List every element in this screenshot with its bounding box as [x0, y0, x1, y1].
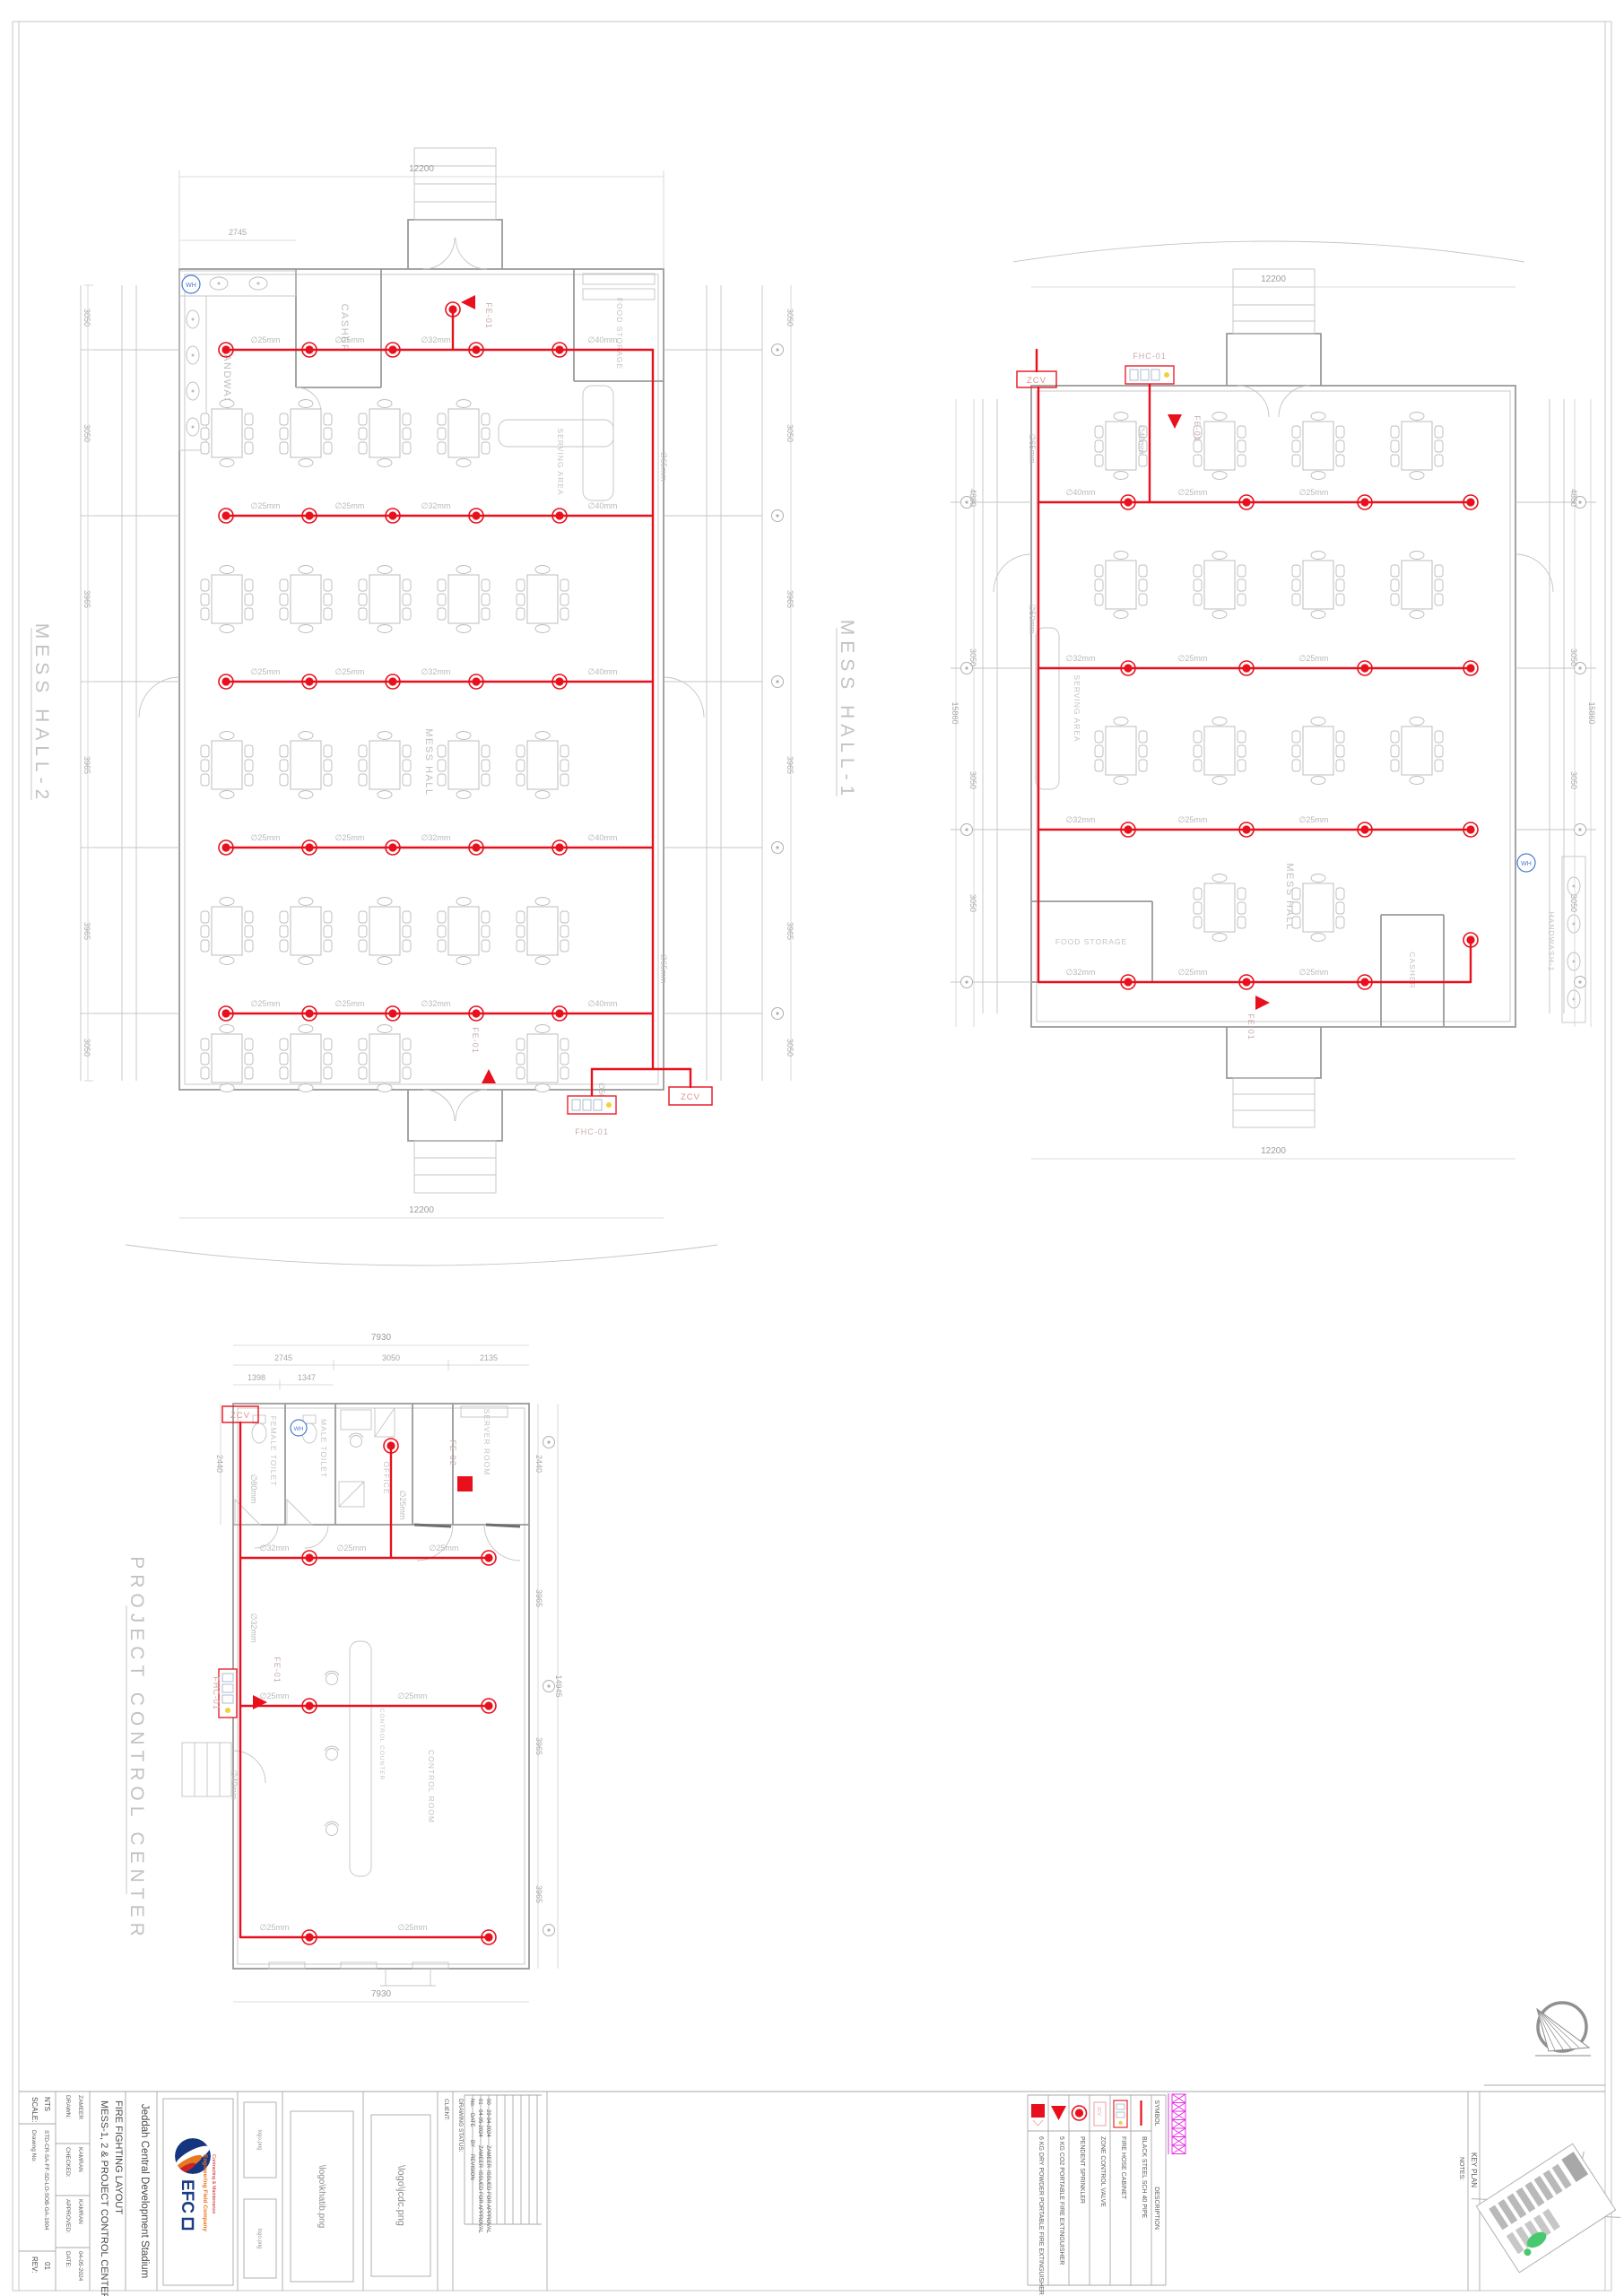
pipe-size-label: ∅40mm [588, 999, 618, 1008]
fe-label: FE-01 [484, 302, 493, 329]
room-label-mess-hall: MESS HALL [423, 728, 434, 796]
fe-label: FE-01 [1246, 1013, 1255, 1040]
dim-mh2-right: 3050 [786, 309, 795, 326]
dining-table [438, 732, 490, 799]
pipe-size-label: ∅32mm [1066, 815, 1096, 824]
pipe-size-label: ∅25mm [337, 1544, 367, 1552]
dim-mh1-left-total: 15860 [951, 701, 960, 724]
handwash-basin [1568, 990, 1580, 1008]
plan-title-pcc: PROJECT CONTROL CENTER [126, 1556, 147, 1942]
room-label-serving-area: SERVING AREA [1073, 674, 1081, 742]
handwash-basin [187, 382, 199, 400]
pipe-size-label: ∅25mm [251, 501, 281, 510]
plan-mess-hall-1: MESS HALL-1 CASHER [837, 241, 1596, 1159]
sheet-border [13, 22, 1611, 2291]
pipe-size-label: ∅25mm [1299, 968, 1329, 977]
dining-table [280, 898, 332, 965]
rev-header-date: DATE [469, 2113, 474, 2127]
dim-pcc-right: 3965 [534, 1589, 543, 1607]
pipe-size-label: ∅25mm [1299, 488, 1329, 497]
legend-desc-fhc: FIRE HOSE CABINET [1120, 2136, 1126, 2200]
dining-table [359, 1025, 411, 1092]
dim-mh2-handwash: 2745 [229, 228, 247, 237]
pipe-size-label: ∅25mm [260, 1923, 290, 1932]
pipe-size-label: ∅25mm [398, 1923, 428, 1932]
room-label-control-counter: CONTROL COUNTER [378, 1709, 385, 1780]
pipe-size-label: ∅40mm [1066, 488, 1096, 497]
rev-row-cell: 00 [485, 2099, 491, 2105]
plan-title-mess-hall-1: MESS HALL-1 [837, 620, 857, 802]
drawing-sheet: MESS HALL-2 [0, 0, 1624, 2296]
mh2-grid-bubbles [772, 344, 784, 1020]
room-label-food-storage: FOOD STORAGE [1055, 937, 1127, 946]
dining-table [280, 732, 332, 799]
dining-table [359, 566, 411, 633]
dim-pcc-right: 3965 [534, 1885, 543, 1903]
legend-symbol-co2-extinguisher [1051, 2106, 1066, 2120]
key-plan-section: NOTES: KEY PLAN [1458, 2003, 1624, 2291]
legend-desc-zcv: ZONE CONTROL VALVE [1099, 2136, 1106, 2207]
dim-mh2-left: 3050 [83, 309, 91, 326]
fhc-label: FHC-01 [1133, 352, 1167, 361]
logo-placeholder-1: logo.png [256, 2129, 262, 2150]
dining-table [438, 400, 490, 467]
key-plan-map [1472, 2134, 1624, 2281]
scale-label: SCALE: [30, 2097, 39, 2122]
dining-table [280, 1025, 332, 1092]
fire-extinguisher-co2-symbol [461, 295, 475, 309]
room-label-server-room: SERVER ROOM [482, 1409, 491, 1476]
zcv-label: ZCV [1027, 376, 1046, 386]
dim-pcc: 3050 [382, 1353, 400, 1362]
legend-title-strip [1168, 2093, 1185, 2154]
dim-mh1-right: 3050 [1569, 894, 1578, 912]
dining-table [201, 898, 253, 965]
date-label: DATE: [65, 2251, 71, 2268]
dim-mh2-right: 3965 [786, 756, 795, 774]
room-label-office: OFFICE [382, 1461, 391, 1494]
pipe-size-label: ∅25mm [251, 999, 281, 1008]
legend-symbol-fire-hose-cabinet [1114, 2100, 1127, 2127]
fe-label: FE-01 [273, 1657, 282, 1683]
pipe-size-label: ∅25mm [1178, 815, 1208, 824]
drawing-title-line2: FIRE FIGHTING LAYOUT [113, 2100, 124, 2214]
logo-placeholder-2: logo.png [256, 2228, 262, 2248]
drawing-no-label: Drawing No: [30, 2130, 37, 2162]
mh1-dining-tables [1095, 413, 1443, 942]
handwash-basin [187, 346, 199, 364]
drawn-value: ZAMEER [77, 2095, 83, 2119]
pipe-size-label: ∅32mm [260, 1544, 290, 1552]
zcv-label: ZCV [681, 1092, 700, 1102]
north-arrow-icon [1535, 2003, 1591, 2056]
fire-hose-cabinet-symbol [219, 1669, 237, 1718]
drawing-status-label: DRAWING STATUS: [457, 2099, 464, 2152]
legend-symbol-dry-powder-extinguisher [1031, 2104, 1045, 2126]
pipe-size-label: ∅25mm [251, 833, 281, 842]
rev-header-revision: REVISION [469, 2154, 474, 2180]
rev-row-cell: 04-05-2024 [477, 2109, 482, 2137]
notes-label: NOTES: [1458, 2157, 1464, 2180]
dim-pcc: 2745 [274, 1353, 292, 1362]
legend-desc-sprinkler: PENDENT SPRINKLER [1079, 2136, 1085, 2204]
dining-table [201, 566, 253, 633]
legend-desc-dry-powder: 6 KG DRY POWDER PORTABLE FIRE EXTINGUISH… [1038, 2136, 1044, 2295]
title-block-lines [19, 2092, 547, 2291]
pipe-size-label: ∅80mm [249, 1474, 258, 1504]
date-value: 04-05-2024 [77, 2251, 83, 2282]
efc-tagline-1: Engineering Field Company [202, 2154, 208, 2231]
efc-logo-square [183, 2219, 193, 2229]
dim-pcc-right: 3965 [534, 1737, 543, 1755]
pipe-size-label: ∅25mm [1178, 488, 1208, 497]
dining-table [359, 898, 411, 965]
fe-label: FE-01 [471, 1027, 480, 1054]
room-label-serving-area: SERVING AREA [556, 428, 565, 495]
dining-table [201, 732, 253, 799]
dining-table [359, 732, 411, 799]
pipe-size-label: ∅25mm [335, 833, 365, 842]
mh2-walls [81, 148, 762, 1265]
drawing-no-value: STD-CR-SA-FF-SD-LO-SOB-GA-1004 [43, 2130, 49, 2231]
handwash-basin [249, 277, 267, 290]
legend-desc-pipe: BLACK STEEL SCH 40 PIPE [1141, 2136, 1147, 2218]
dining-table [438, 566, 490, 633]
efc-tagline-2: Contracting & Maintenance [211, 2154, 216, 2213]
dim-mh2-left: 3965 [83, 756, 91, 774]
dim-pcc: 2135 [480, 1353, 498, 1362]
dim-mh2-bottom: 12200 [409, 1205, 434, 1215]
dim-pcc-left: 2440 [215, 1455, 224, 1473]
dim-mh1-left: 3050 [968, 771, 977, 789]
pipe-size-label: ∅32mm [421, 667, 451, 676]
water-heater-label: WH [294, 1426, 304, 1432]
svg-text:ZCV: ZCV [1096, 2107, 1101, 2117]
office-chair [325, 1822, 339, 1835]
legend-symbol-zone-control-valve: ZCV [1094, 2102, 1106, 2126]
rev-header-by: BY [469, 2140, 474, 2147]
pipe-size-label: ∅40mm [588, 667, 618, 676]
scale-value: NTS [43, 2097, 51, 2111]
dining-table [517, 898, 569, 965]
room-label-handwash-1: HANDWASH-1 [1547, 912, 1556, 972]
handwash-basin [210, 277, 228, 290]
drawn-label: DRAWN: [65, 2095, 71, 2118]
dining-table [517, 732, 569, 799]
pipe-size-label: ∅32mm [421, 335, 451, 344]
pipe-size-label: ∅25mm [1299, 654, 1329, 663]
pipe-size-label: ∅32mm [421, 501, 451, 510]
rev-row-cell: 29-04-2024 [485, 2109, 491, 2137]
pipe-size-label: ∅25mm [1299, 815, 1329, 824]
dim-pcc-top: 7930 [371, 1333, 392, 1343]
dim-mh2-top: 12200 [409, 164, 434, 174]
office-chair [349, 1433, 363, 1447]
legend-desc-co2: 5 KG CO2 PORTABLE FIRE EXTINGUISHER [1058, 2136, 1064, 2265]
approved-value: KAMRAN [77, 2199, 83, 2224]
approved-label: APPROVED: [65, 2199, 71, 2233]
handwash-basin [1568, 877, 1580, 895]
efc-company-logo: EFC Engineering Field Company Contractin… [163, 2099, 233, 2285]
client-label: CLIENT: [443, 2099, 449, 2120]
dim-pcc-right-total: 14945 [554, 1674, 563, 1697]
dining-table [280, 566, 332, 633]
room-label-control-room: CONTROL ROOM [427, 1750, 436, 1823]
dim-mh1-right-total: 15860 [1587, 701, 1596, 724]
handwash-basin [187, 418, 199, 436]
dim-mh1-left: 4880 [968, 489, 977, 507]
rev-row-cell: ZAMEER [477, 2145, 482, 2169]
logo-jcdc: \logo\jcdc.png [395, 2165, 406, 2226]
pipe-size-label: ∅65mm [659, 954, 668, 984]
dim-mh2-left: 3965 [83, 590, 91, 608]
dim-mh2-left: 3965 [83, 922, 91, 940]
dim-mh1-top: 12200 [1261, 274, 1286, 284]
plan-title-mess-hall-2: MESS HALL-2 [31, 623, 52, 805]
rev-header-no: No. [469, 2099, 474, 2108]
office-chair [325, 1746, 339, 1760]
revision-table: No. DATE BY REVISION 01 04-05-2024 ZAMEE… [465, 2095, 542, 2234]
pipe-size-label: ∅25mm [251, 667, 281, 676]
pipe-size-label: ∅25mm [335, 335, 365, 344]
fhc-label: FHC-01 [212, 1676, 221, 1710]
rev-row-cell: ZAMEER [485, 2145, 491, 2169]
fire-extinguisher-co2-symbol [1255, 996, 1270, 1010]
pipe-size-label: ∅65mm [1028, 434, 1037, 464]
dining-table [280, 400, 332, 467]
dim-mh1-left: 3050 [968, 648, 977, 666]
pipe-size-label: ∅25mm [1178, 968, 1208, 977]
pipe-size-label: ∅50mm [1028, 604, 1037, 634]
dim-pcc-right: 2440 [534, 1455, 543, 1473]
dining-table [517, 566, 569, 633]
efc-logo-text: EFC [178, 2179, 196, 2213]
pipe-size-label: ∅25mm [251, 335, 281, 344]
dining-table [201, 1025, 253, 1092]
dim-mh2-right: 3050 [786, 424, 795, 442]
handwash-basin [187, 310, 199, 328]
pipe-size-label: ∅40mm [230, 1770, 239, 1800]
pipe-size-label: ∅40mm [588, 335, 618, 344]
pipe-size-label: ∅65mm [659, 452, 668, 482]
pipe-size-label: ∅32mm [421, 999, 451, 1008]
zcv-label: ZCV [230, 1411, 250, 1421]
dim-mh1-right: 4880 [1569, 489, 1578, 507]
dim-mh2-right: 3965 [786, 590, 795, 608]
drawing-title-line1: MESS-1, 2 & PROJECT CONTROL CENTER [99, 2100, 109, 2296]
rev-value: 01 [43, 2262, 51, 2270]
fire-extinguisher-dry-powder-symbol [457, 1476, 473, 1492]
pipe-size-label: ∅32mm [1066, 654, 1096, 663]
mh2-rooms: CASHER HANDWASH-2 WH FOOD STORAGE SERVIN… [179, 269, 664, 796]
title-block: SCALE: NTS Drawing No: STD-CR-SA-FF-SD-L… [19, 2003, 1624, 2296]
key-plan-label: KEY PLAN [1470, 2152, 1478, 2187]
room-label-casher: CASHER [1408, 952, 1417, 988]
fe-label: FE-01 [1193, 415, 1202, 442]
pipe-size-label: ∅25mm [1178, 654, 1208, 663]
mh1-grid-bubbles [961, 497, 1586, 988]
pipe-size-label: ∅40mm [588, 833, 618, 842]
rev-row-cell: ISSUED FOR APPROVAL [477, 2170, 482, 2234]
checked-value: KAMRAN [77, 2147, 83, 2172]
fe-label: FE-02 [448, 1439, 457, 1466]
pipe-size-label: ∅25mm [335, 501, 365, 510]
legend-symbol-pendent-sprinkler [1073, 2106, 1087, 2120]
room-label-female-toilet: FEMALE TOILET [269, 1416, 278, 1487]
legend: SYMBOL DESCRIPTION ZCV BLACK STEEL SCH 4… [1028, 2093, 1185, 2295]
rev-label: REV: [30, 2257, 39, 2273]
dim-mh2-right: 3050 [786, 1039, 795, 1057]
pipe-size-label: ∅32mm [1066, 968, 1096, 977]
fire-fighting-layout-drawing: MESS HALL-2 [0, 0, 1624, 2296]
water-heater-label: WH [1521, 861, 1532, 867]
pipe-size-label: ∅32mm [249, 1613, 258, 1643]
legend-description-header: DESCRIPTION [1153, 2187, 1159, 2230]
handwash-basin [1568, 952, 1580, 970]
pcc-grid-bubbles [543, 1437, 555, 1936]
pipe-size-label: ∅25mm [335, 667, 365, 676]
office-chair [325, 1671, 339, 1684]
pipe-size-label: ∅25mm [335, 999, 365, 1008]
dim-pcc-bottom: 7930 [371, 1989, 392, 1999]
plan-mess-hall-2: MESS HALL-2 [31, 148, 795, 1265]
pipe-size-label: ∅25mm [430, 1544, 459, 1552]
pipe-size-label: ∅40mm [1137, 425, 1146, 455]
dim-mh1-right: 3050 [1569, 771, 1578, 789]
dining-table [438, 898, 490, 965]
project-name: Jeddah Central Development Stadium [139, 2104, 150, 2278]
dim-pcc: 1398 [248, 1373, 265, 1382]
checked-label: CHECKED: [65, 2147, 71, 2178]
fhc-label: FHC-01 [575, 1127, 609, 1136]
dining-table [201, 400, 253, 467]
pipe-size-label: ∅40mm [588, 501, 618, 510]
pipe-size-label: ∅32mm [421, 833, 451, 842]
plan-project-control-center: PROJECT CONTROL CENTER WH [126, 1333, 563, 2002]
dim-mh2-left: 3050 [83, 1039, 91, 1057]
dining-table [359, 400, 411, 467]
mh1-walls [951, 241, 1596, 1127]
dim-mh2-right: 3965 [786, 922, 795, 940]
fire-hose-cabinet-symbol [568, 1096, 616, 1114]
dim-mh1-right: 3050 [1569, 648, 1578, 666]
pipe-size-label: ∅25mm [260, 1692, 290, 1700]
dining-table [517, 1025, 569, 1092]
mh1-dimensions: 12200 12200 4880 3050 3050 3050 15860 48… [951, 274, 1596, 1159]
water-heater-label: WH [186, 283, 196, 289]
pcc-dimensions: 7930 2745 3050 2135 1398 1347 2440 2440 … [215, 1333, 563, 2002]
dim-mh1-left: 3050 [968, 894, 977, 912]
pipe-size-label: ∅25mm [398, 1692, 428, 1700]
title-block-meta: SCALE: NTS Drawing No: STD-CR-SA-FF-SD-L… [30, 2095, 83, 2282]
logo-khatib: \logo\khatib.png [317, 2165, 326, 2229]
dim-pcc: 1347 [298, 1373, 316, 1382]
fire-extinguisher-co2-symbol [482, 1069, 496, 1083]
dim-mh1-bottom: 12200 [1261, 1146, 1286, 1156]
pcc-rooms: WH FEMALE TOILET MALE TOILET OFFICE SERV… [235, 1406, 508, 1876]
rev-row-cell: ISSUED FOR APPROVAL [485, 2170, 491, 2234]
room-label-food-storage: FOOD STORAGE [615, 298, 624, 370]
logo-boxes: logo.png logo.png \logo\khatib.png \logo… [244, 2102, 430, 2282]
fire-extinguisher-co2-symbol [1168, 414, 1182, 429]
handwash-basin [1568, 915, 1580, 933]
dim-mh2-left: 3050 [83, 424, 91, 442]
rev-row-cell: 01 [477, 2099, 482, 2105]
pipe-size-label: ∅25mm [398, 1491, 407, 1520]
room-label-male-toilet: MALE TOILET [319, 1419, 328, 1478]
fire-hose-cabinet-symbol [1125, 366, 1174, 384]
room-label-casher: CASHER [339, 304, 350, 353]
legend-symbol-header: SYMBOL [1153, 2100, 1159, 2126]
